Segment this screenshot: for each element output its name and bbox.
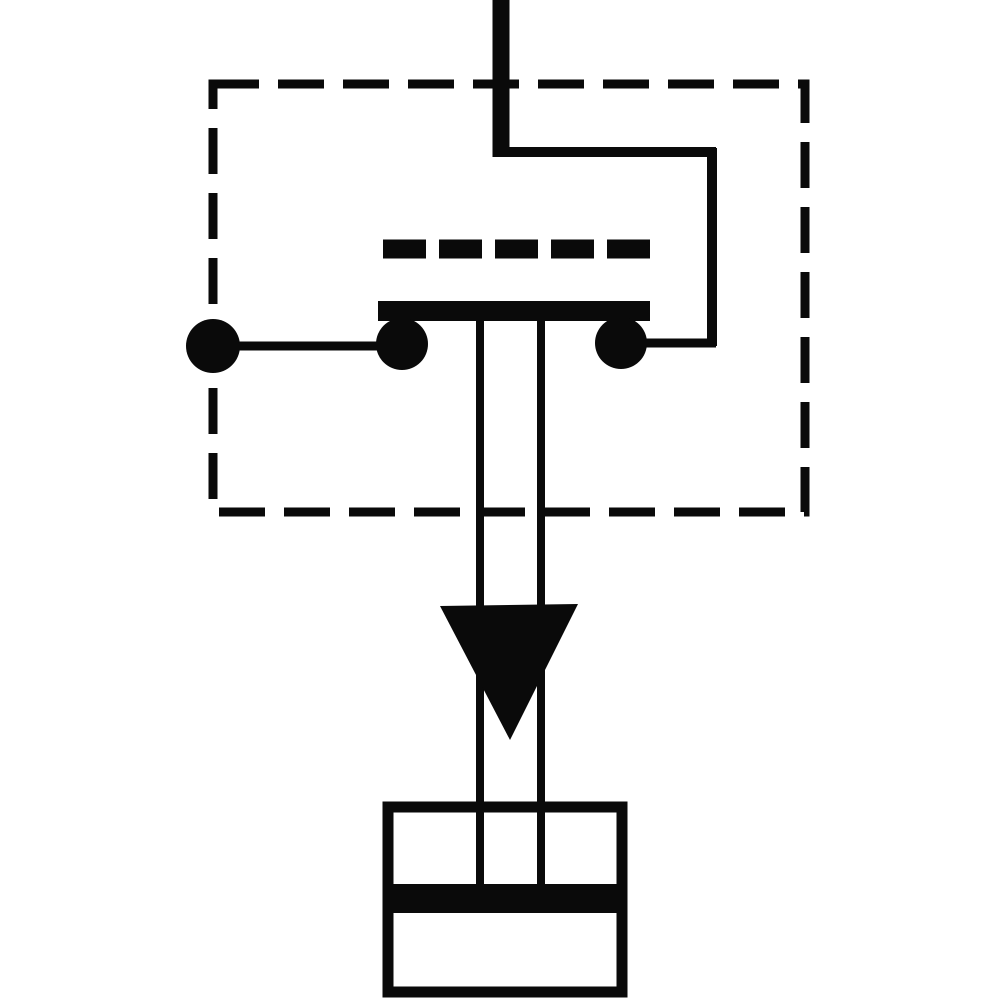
contact-bridge-bar xyxy=(378,301,650,321)
piston-band xyxy=(387,884,624,913)
scanned-schematic-page xyxy=(0,0,1000,1000)
pressure-arrowhead xyxy=(440,604,578,740)
schematic-diagram xyxy=(0,0,1000,1000)
